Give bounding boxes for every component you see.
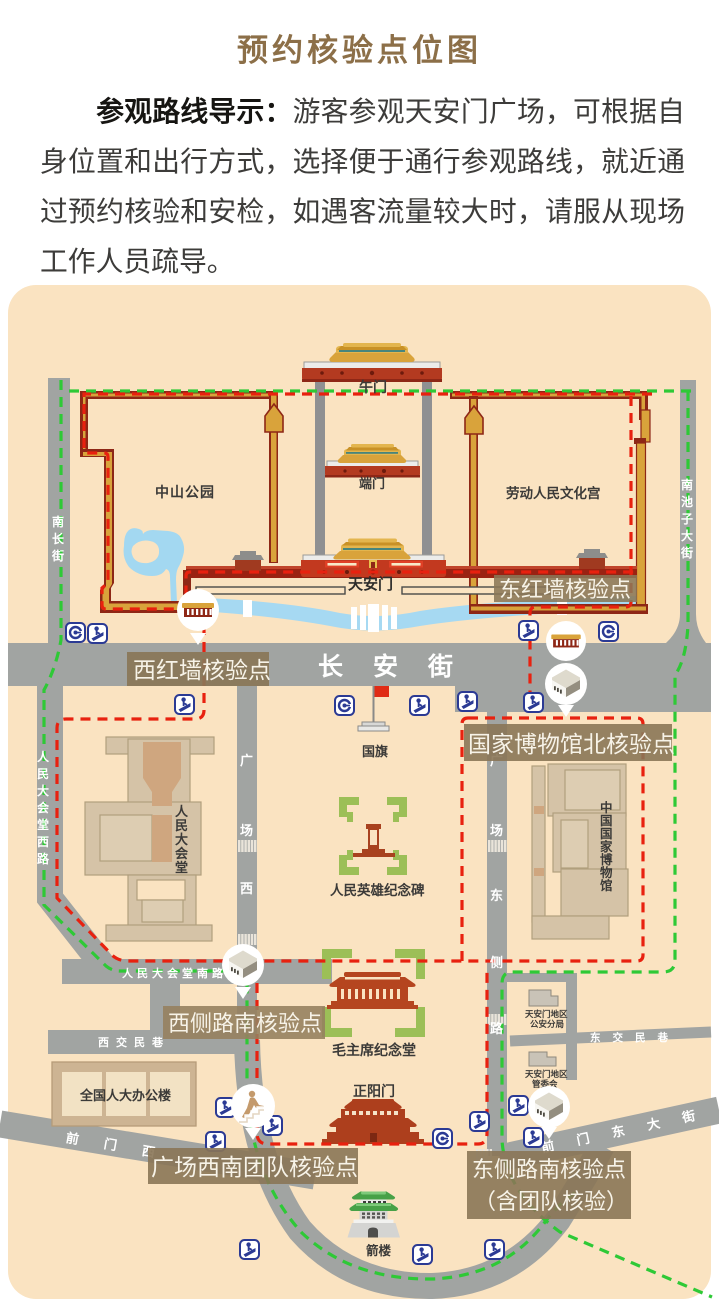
svg-text:博: 博 (600, 852, 613, 867)
svg-text:西: 西 (240, 881, 253, 896)
svg-text:箭楼: 箭楼 (366, 1243, 392, 1258)
svg-text:人: 人 (175, 804, 189, 819)
svg-text:场: 场 (240, 823, 253, 838)
svg-text:街: 街 (51, 548, 64, 563)
svg-text:天安门地区: 天安门地区 (525, 1069, 568, 1079)
svg-text:西交民巷: 西交民巷 (98, 1035, 170, 1049)
svg-text:大: 大 (37, 783, 49, 798)
svg-text:国: 国 (600, 814, 613, 828)
svg-text:全国人大办公楼: 全国人大办公楼 (79, 1088, 171, 1103)
svg-text:堂: 堂 (175, 860, 188, 875)
svg-text:天安门地区: 天安门地区 (525, 1009, 568, 1019)
svg-text:国旗: 国旗 (362, 744, 388, 759)
svg-text:场: 场 (490, 823, 503, 838)
svg-text:毛主席纪念堂: 毛主席纪念堂 (332, 1042, 416, 1058)
svg-text:人民英雄纪念碑: 人民英雄纪念碑 (330, 882, 425, 898)
svg-text:长: 长 (52, 531, 65, 546)
svg-text:会: 会 (175, 846, 189, 861)
svg-text:公安分局: 公安分局 (530, 1019, 564, 1029)
svg-text:西侧路南核验点: 西侧路南核验点 (168, 1011, 322, 1036)
svg-text:东红墙核验点: 东红墙核验点 (499, 577, 631, 602)
svg-text:东交民巷: 东交民巷 (590, 1031, 680, 1044)
svg-text:路: 路 (490, 1021, 504, 1036)
svg-text:人民大会堂南路: 人民大会堂南路 (122, 966, 227, 980)
svg-text:子: 子 (681, 512, 693, 526)
svg-text:会: 会 (37, 800, 50, 815)
svg-text:堂: 堂 (37, 817, 49, 832)
svg-text:侧: 侧 (490, 955, 503, 970)
svg-text:广场西南团队核验点: 广场西南团队核验点 (151, 1154, 358, 1180)
svg-text:南: 南 (681, 477, 693, 492)
svg-text:人: 人 (37, 749, 50, 764)
svg-text:物: 物 (600, 865, 613, 880)
svg-text:长安街: 长安街 (318, 652, 483, 681)
svg-text:正阳门: 正阳门 (353, 1083, 395, 1099)
svg-text:劳动人民文化宫: 劳动人民文化宫 (506, 485, 601, 501)
svg-text:东侧路南核验点: 东侧路南核验点 (472, 1157, 626, 1182)
svg-text:中: 中 (600, 800, 613, 815)
svg-text:馆: 馆 (600, 878, 613, 893)
svg-text:前: 前 (65, 1130, 80, 1147)
svg-text:广: 广 (240, 753, 253, 768)
svg-text:西: 西 (37, 835, 49, 849)
svg-text:门: 门 (103, 1136, 118, 1153)
svg-text:天安门: 天安门 (348, 575, 393, 593)
svg-text:西红墙核验点: 西红墙核验点 (133, 657, 271, 683)
svg-text:大: 大 (681, 528, 693, 543)
svg-text:端门: 端门 (359, 476, 385, 491)
svg-text:国: 国 (600, 827, 613, 841)
svg-text:民: 民 (37, 767, 49, 781)
svg-text:家: 家 (600, 839, 613, 854)
svg-text:大: 大 (175, 832, 188, 847)
svg-text:午门: 午门 (359, 379, 387, 395)
svg-text:池: 池 (681, 494, 693, 509)
svg-text:路: 路 (37, 851, 50, 866)
svg-text:街: 街 (680, 545, 693, 560)
svg-text:国家博物馆北核验点: 国家博物馆北核验点 (468, 731, 675, 757)
svg-text:东: 东 (490, 888, 503, 903)
svg-text:（含团队核验）: （含团队核验） (474, 1189, 628, 1214)
svg-text:中山公园: 中山公园 (155, 484, 215, 500)
svg-text:民: 民 (175, 818, 188, 833)
svg-text:南: 南 (52, 514, 64, 529)
